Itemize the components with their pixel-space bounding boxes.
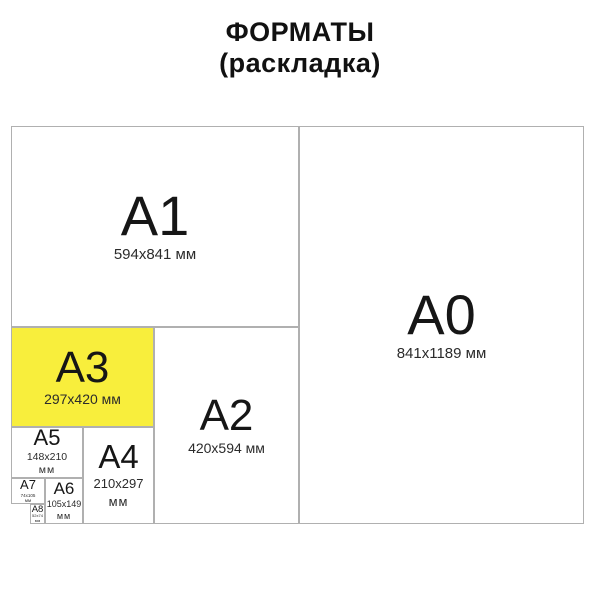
format-a6-unit: мм xyxy=(57,511,71,521)
page-title: ФОРМАТЫ (раскладка) xyxy=(0,17,600,79)
format-a3-dimensions: 297x420 мм xyxy=(44,391,121,407)
format-a0-dimensions: 841x1189 мм xyxy=(397,345,487,362)
format-box-a3: A3 297x420 мм xyxy=(11,327,154,427)
format-a7-unit: мм xyxy=(25,498,31,503)
format-a4-unit: мм xyxy=(109,495,129,510)
format-a5-unit: мм xyxy=(39,464,55,476)
format-a2-dimensions: 420x594 мм xyxy=(188,440,265,456)
format-box-a4: A4 210x297 мм xyxy=(83,427,154,524)
format-a2-label: A2 xyxy=(200,395,254,437)
format-a3-label: A3 xyxy=(56,347,110,389)
format-a6-label: A6 xyxy=(54,481,75,497)
format-a4-label: A4 xyxy=(98,441,138,472)
page: ФОРМАТЫ (раскладка) A1 594x841 мм A0 841… xyxy=(0,0,600,600)
format-box-a2: A2 420x594 мм xyxy=(154,327,299,524)
format-a5-dimensions: 148x210 xyxy=(27,451,67,463)
format-a4-dimensions: 210x297 xyxy=(94,477,144,492)
format-a7-label: A7 xyxy=(20,479,36,491)
format-box-a5: A5 148x210 мм xyxy=(11,427,83,478)
format-a8-unit: мм xyxy=(35,519,41,524)
format-a0-label: A0 xyxy=(407,288,476,341)
format-a5-label: A5 xyxy=(34,428,61,449)
format-box-a6: A6 105x149 мм xyxy=(45,478,83,524)
page-title-line2: (раскладка) xyxy=(0,48,600,79)
format-box-a0: A0 841x1189 мм xyxy=(299,126,584,524)
format-a1-label: A1 xyxy=(121,189,190,242)
format-a1-dimensions: 594x841 мм xyxy=(114,246,196,263)
format-box-a8: A8 52x74 мм xyxy=(30,504,45,524)
format-box-a1: A1 594x841 мм xyxy=(11,126,299,327)
page-title-line1: ФОРМАТЫ xyxy=(0,17,600,48)
format-box-a7: A7 74x105 мм xyxy=(11,478,45,504)
format-a6-dimensions: 105x149 xyxy=(47,499,82,509)
